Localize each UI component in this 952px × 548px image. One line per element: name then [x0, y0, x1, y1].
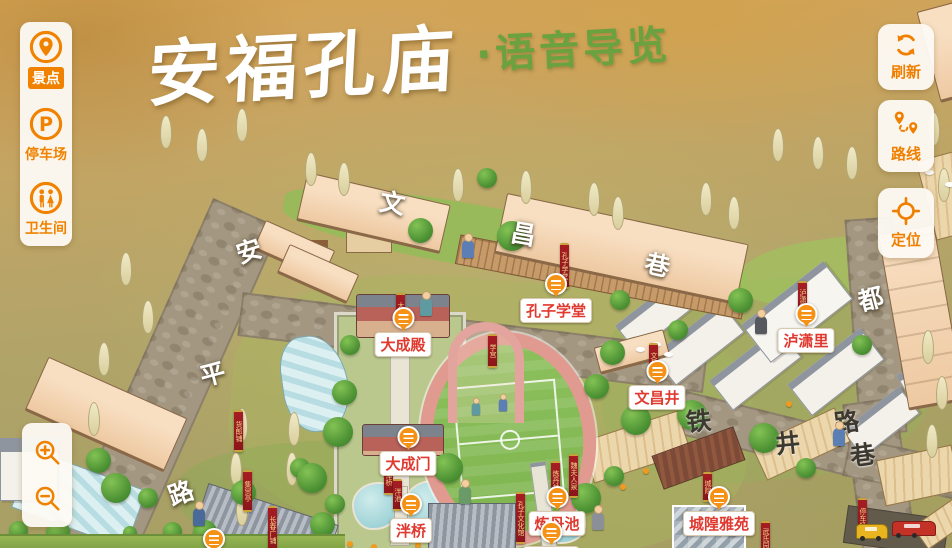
tree [728, 288, 753, 313]
scenic-pin-icon [29, 30, 63, 64]
audio-pin-icon[interactable] [708, 486, 730, 508]
hall-roof [428, 503, 516, 548]
car-red [892, 521, 936, 536]
refresh-icon [890, 32, 922, 58]
tree [477, 168, 497, 188]
poplar-tree [812, 136, 824, 170]
poi-zhuangyuanqiao[interactable]: 状元桥 [522, 521, 579, 548]
poplar-tree [588, 182, 600, 216]
tree [433, 453, 463, 483]
tree [332, 380, 357, 405]
poplar-tree [846, 146, 858, 180]
street-char: 巷 [848, 434, 878, 473]
poi-label[interactable]: 孔子学堂 [520, 298, 592, 323]
poplar-tree [305, 152, 317, 186]
page-title: 安福孔庙 ·语音导览 [146, 0, 674, 121]
zoom-out-button[interactable] [30, 481, 64, 515]
poplar-tree [338, 162, 350, 196]
zoom-out-icon [32, 483, 62, 513]
poi-chenghuangyayuan[interactable]: 城隍雅苑 [683, 486, 755, 536]
sidebar-item-restroom[interactable]: 卫生间 [25, 181, 67, 238]
title-sub: ·语音导览 [474, 12, 672, 80]
tree [101, 473, 131, 503]
bird [945, 182, 952, 187]
audio-pin-icon[interactable] [646, 360, 668, 382]
poi-panqiao[interactable]: 泮桥 [390, 493, 432, 543]
poplar-tree [612, 196, 624, 230]
tree [796, 458, 816, 478]
lantern-dot [371, 544, 377, 548]
tree [310, 512, 335, 537]
banner: 集贸亭 [243, 470, 252, 512]
entrance-arch [448, 322, 524, 423]
person [592, 512, 604, 530]
lantern-dot [786, 401, 792, 407]
poplar-tree [452, 168, 464, 202]
audio-pin-icon[interactable] [203, 528, 225, 548]
svg-text:P: P [39, 113, 53, 136]
poplar-tree [700, 182, 712, 216]
poi-luxiaoli[interactable]: 泸潇里 [777, 303, 834, 353]
poi-label[interactable]: 城隍雅苑 [683, 511, 755, 536]
car-yellow [856, 524, 888, 539]
poi-label[interactable]: 泸潇里 [777, 328, 834, 353]
locate-label[interactable]: 定位 [891, 229, 921, 250]
person [459, 486, 471, 504]
audio-pin-icon[interactable] [545, 273, 567, 295]
poplar-tree [120, 252, 132, 286]
street-char: 铁 [684, 401, 713, 439]
audio-pin-icon[interactable] [392, 307, 414, 329]
refresh-label[interactable]: 刷新 [891, 61, 921, 82]
poi-kongzixuetang[interactable]: 孔子学堂 [520, 273, 592, 323]
poi-dachengdian[interactable]: 大成殿 [374, 307, 431, 357]
tree [852, 335, 872, 355]
poplar-tree [926, 424, 938, 458]
tree [584, 374, 609, 399]
poplar-tree [728, 196, 740, 230]
route-label[interactable]: 路线 [891, 143, 921, 164]
poplar-tree [98, 342, 110, 376]
tree [340, 335, 360, 355]
audio-pin-icon[interactable] [546, 486, 568, 508]
poi-label[interactable]: 文昌井 [628, 385, 685, 410]
poplar-tree [160, 115, 172, 149]
refresh-button[interactable]: 刷新 [878, 24, 934, 90]
sidebar-item-label[interactable]: 景点 [28, 67, 64, 89]
title-main: 安福孔庙 [146, 0, 463, 121]
bird [664, 352, 673, 357]
banner: 学宫 [488, 334, 497, 368]
banner: 武氏园 [761, 521, 770, 548]
lantern-dot [643, 468, 649, 474]
poplar-tree [922, 330, 934, 364]
person [462, 240, 474, 258]
poplar-tree [288, 412, 300, 446]
poi-label[interactable]: 泮桥 [390, 518, 432, 543]
sidebar-item-label[interactable]: 停车场 [25, 144, 67, 164]
route-button[interactable]: 路线 [878, 100, 934, 172]
sidebar-item-scenic[interactable]: 景点 [28, 30, 64, 89]
poi-dachengmen[interactable]: 大成门 [379, 426, 436, 476]
poplar-tree [88, 402, 100, 436]
map-stage[interactable]: 大成 孔子学堂 泸潇里 文昌 学宫 津桥 泮池 孔子文化馆 炼丹井 魏夫人泉 城… [0, 0, 952, 548]
restroom-icon [29, 181, 63, 215]
sidebar-item-label[interactable]: 卫生间 [25, 218, 67, 238]
poi-label[interactable]: 大成门 [379, 451, 436, 476]
poi-label[interactable]: 大成殿 [374, 332, 431, 357]
parking-icon: P [29, 107, 63, 141]
locate-button[interactable]: 定位 [878, 188, 934, 258]
person [755, 316, 767, 334]
poplar-tree [936, 376, 948, 410]
zoom-panel [22, 423, 72, 527]
poi-wenchangjing[interactable]: 文昌井 [628, 360, 685, 410]
tree [138, 488, 158, 508]
tree [668, 320, 688, 340]
zoom-in-button[interactable] [30, 435, 64, 469]
banner: 长春广铺 [268, 506, 277, 548]
person [193, 508, 205, 526]
banner: 货郎铺 [234, 410, 243, 452]
zoom-in-icon [32, 437, 62, 467]
tree [408, 218, 433, 243]
tree [604, 466, 624, 486]
audio-pin-icon[interactable] [540, 521, 562, 543]
lantern-dot [347, 541, 353, 547]
grass-strip [0, 534, 345, 548]
tree [325, 494, 345, 514]
tree [323, 417, 353, 447]
sidebar-item-parking[interactable]: P 停车场 [25, 107, 67, 164]
poi-unlabeled[interactable] [203, 528, 225, 548]
tree [610, 290, 630, 310]
tree [86, 448, 111, 473]
poplar-tree [196, 128, 208, 162]
person [472, 403, 480, 416]
route-icon [890, 108, 922, 140]
person [833, 428, 845, 446]
street-char: 井 [773, 423, 802, 461]
tree [600, 340, 625, 365]
left-sidebar: 景点 P 停车场 卫生间 [20, 22, 72, 246]
person [499, 399, 507, 412]
audio-pin-icon[interactable] [397, 426, 419, 448]
audio-pin-icon[interactable] [795, 303, 817, 325]
bird [636, 347, 645, 352]
audio-pin-icon[interactable] [400, 493, 422, 515]
poplar-tree [772, 128, 784, 162]
poplar-tree [520, 170, 532, 204]
lantern-dot [620, 484, 626, 490]
poplar-tree [142, 300, 154, 334]
tree [297, 463, 327, 493]
locate-icon [890, 196, 922, 226]
